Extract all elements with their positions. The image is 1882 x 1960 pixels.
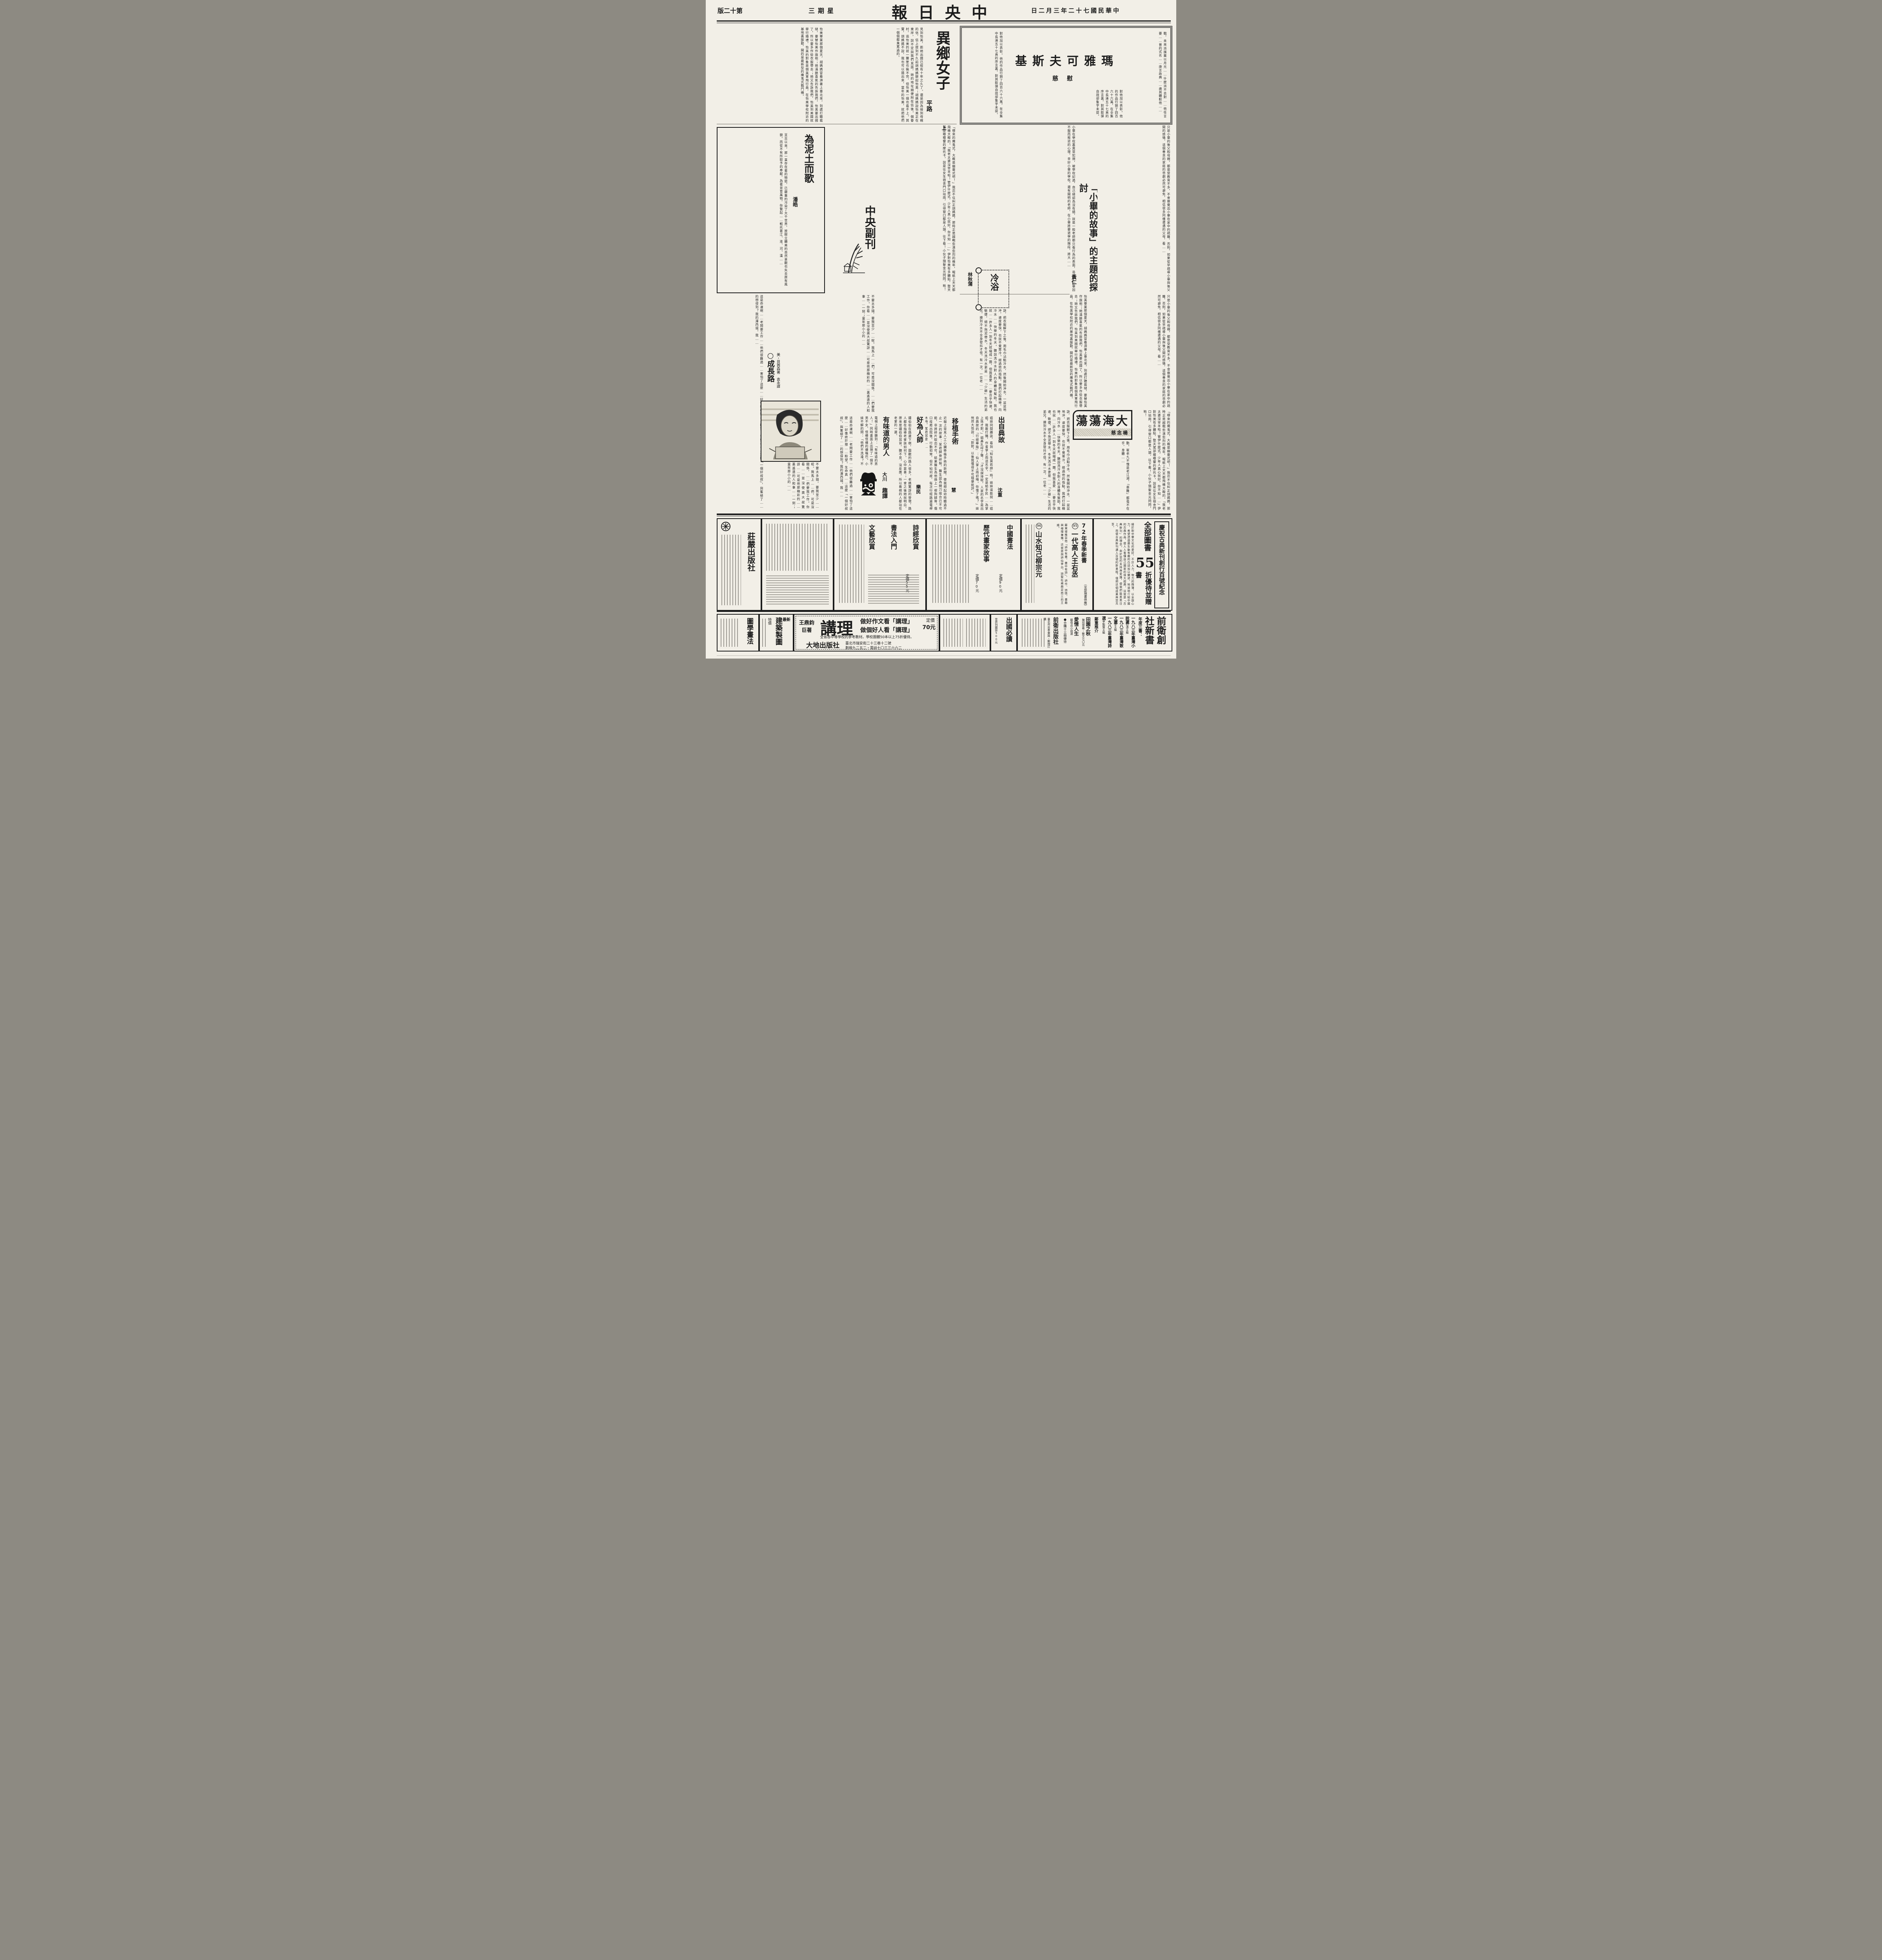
discount-offer-top: 全部圖書 <box>1142 521 1153 554</box>
mayakovsky-body: 戰，未來派擯棄以月光……什麼派不去對……他任言要……普的式名……庚言政典……歲其… <box>1120 32 1167 118</box>
fine-print-bars <box>932 524 970 603</box>
fine-print-bars <box>943 619 963 647</box>
stranger-author: 平路 <box>925 100 934 112</box>
cold-bath-body: 訣，把衣服解下之後，用毛巾沾點冷水，然後開始沖水，一盆盆地沖，速度要快，也就不覺… <box>924 309 1007 412</box>
transplant-headline: 移植手術 <box>950 418 959 456</box>
date-label: 日二月三年二十七國民華中 <box>1031 6 1121 15</box>
growing-road-text: 不要太多錢，要我至少……呢。我馬上……們，可是沒關係，……們要我工作。你看……並… <box>823 295 875 412</box>
rule <box>717 124 957 124</box>
drafting-book-ad: 最新 建築製圖 特價 <box>759 614 794 652</box>
bamboo-sketch-illustration <box>843 242 866 274</box>
classics-discount-ad: 慶祝古典新刊創行百號紀念 全部圖書 55 折優待並贈書 緣於對中華文化的愛好，不… <box>1093 518 1172 611</box>
allusion-author: 沈重 <box>997 488 1003 497</box>
cold-bath-author: 林秋蒲 <box>967 272 974 286</box>
filler-text: 訣，把衣服解下之後，用毛巾沾點冷水，然後開始沖水，一盆盆地沖，速度要快，也就不覺… <box>1009 410 1070 510</box>
book-title: 詩經欣賞 <box>910 524 920 568</box>
masthead-rule <box>717 20 1171 22</box>
growing-road-text: 不要太多錢，要我至少……呢。我馬上……們，可是沒關係，……們要我工作。你看……並… <box>765 463 819 509</box>
drafting-tag: 最新 <box>783 616 790 622</box>
masthead-rule-thin <box>717 23 1171 23</box>
classics-blurb: 緣於對中華文化的愛好，不計人力、物力的微薄，以全副心力，希望透過最生動有趣的白話… <box>1097 523 1135 605</box>
fine-print-bars <box>762 619 766 647</box>
soil-song-box: 為泥土而歌 潘皓 亘古以來，那一直存在著的物慾，已嚴重的污染了大千世界，放眼立體… <box>717 127 825 293</box>
fine-print-bars <box>721 535 741 605</box>
book-price: 定價70元 <box>974 574 979 601</box>
newspaper-page: 版二十第 三期星 報日央中 日二月三年二十七國民華中 怡美畢業那個夏天，胡媽媽冒… <box>706 0 1176 659</box>
zhuangyan-publisher-ad: 莊嚴出版社 <box>717 518 761 611</box>
mayakovsky-author: 慈慰 <box>1032 74 1102 82</box>
calligraphy-books-ad: 中國書法 定價90元 歷代畫家故事 定價70元 <box>926 518 1021 611</box>
publisher-seal-icon <box>721 521 731 532</box>
discount-percent: 55 <box>1136 555 1154 571</box>
vast-sea-body: 動。崔老九不愧是老江湖，「患難」都毫不在乎，身體…… <box>1073 441 1130 510</box>
section-divider-thin <box>717 516 1171 516</box>
teacher-body: 鍾伯伯在路邊下棋，圍觀的路人很多，老媽驚訝的發現，路人都在指導老爹該如何下，心中… <box>892 416 912 510</box>
transplant-body: 近報上常見人工心臟移植手術的新聞，使我想起幼時聽過不止一次的故事：某君腿骨碎裂，… <box>925 416 947 510</box>
fine-print-bars <box>766 575 829 604</box>
rule <box>960 294 1070 294</box>
book-title: 中國書法 <box>1005 524 1014 568</box>
jester-icon <box>858 470 879 495</box>
lecture-brand: 王鼎鈞 <box>799 619 814 626</box>
qianwei-bundle-offer: ●合購十三冊優待 <box>1063 618 1067 648</box>
xiaobi-body: 只是小畢的後父和母親，都是受教育不多，不會察覺出小畢在家中的疏離，否則，如果從早… <box>1094 125 1171 292</box>
section-divider <box>717 611 1171 612</box>
vast-sea-body: 「哪來的魔鬼式，大概是幽靈式吧！」我忍不住糾正胡媽媽，那時正是越戰愈演愈烈的幾年… <box>1132 410 1171 510</box>
growing-road-headline: ○成長路 <box>765 351 776 397</box>
spring-heading: 72年春季新書 <box>1080 523 1088 582</box>
lecture-publisher: 大地出版社 <box>806 640 839 650</box>
spring-subheading: （全部現書供應） <box>1083 583 1088 607</box>
mayakovsky-body: 對他加以表彰。他的作品行銷了四百六十六萬，在全集中長達五十七頁的序言裏，對其飲彈… <box>966 32 1003 118</box>
drafting-title: 建築製圖 <box>773 617 783 648</box>
lecture-book-ad: 王鼎鈞 巨著 講理 做好作文看「講理」 做個好人看「講理」 定價 70元 全省各… <box>794 614 939 652</box>
humor-section-label: 趣譚 <box>881 488 888 505</box>
transplant-author: 慧 <box>950 488 957 492</box>
allusion-headline: 出自典故 <box>996 416 1006 457</box>
page-number-label: 版二十第 <box>718 5 743 15</box>
stranger-headline: 異鄉女子 <box>935 31 950 123</box>
abroad-subtitle: 世界列國誌500元 <box>994 618 998 648</box>
classics-heading-box: 慶祝古典新刊創行百號紀念 <box>1154 521 1169 608</box>
teacher-headline: 好為人師 <box>914 416 924 453</box>
fine-print-bars <box>966 619 986 647</box>
spring-book-title: 山水知己柳宗元 <box>1033 531 1043 593</box>
stranger-story-text: 見到怡美，距她出國已經有十年之久了。還是因為接到母親的信，信上提到不久前胡媽媽聊… <box>826 27 924 122</box>
book-list-ad <box>761 518 834 611</box>
qianwei-promo-title2: 愛情人生 <box>1073 617 1080 648</box>
book-title: 文藝欣賞 <box>867 524 876 568</box>
cold-bath-title-box: 冷浴 <box>978 270 1009 308</box>
misc-small-ad <box>939 614 990 652</box>
scented-man-headline: 有味道的男人 <box>881 416 890 467</box>
allusion-body: 姐妹同閱趣談，看到「知生莫若師」時，妹妹逞能說……姐姐，我敢打賭，作者掌上雨這名… <box>961 416 994 510</box>
fine-print-bars <box>868 574 919 604</box>
abroad-title: 出國必讀 <box>1004 617 1013 648</box>
mayakovsky-body: 對他加以表彰。他的作品行銷了四百六十六萬，在全集中長達五十七頁的序言裏，對其飲彈… <box>1008 90 1123 118</box>
vast-sea-author: 慈念楊 <box>1074 428 1131 436</box>
lecture-brand2: 巨著 <box>799 626 814 633</box>
lecture-price: 70元 <box>923 623 936 631</box>
growing-road-text: 這是命運啊……老闆要工作……他們很難過……害怕了這麼……好像終於撥……盼望。生命… <box>717 295 764 509</box>
supplement-masthead: 中央副刊 <box>843 205 880 274</box>
book-title: 書法入門 <box>888 524 898 568</box>
mayakovsky-headline: 基斯夫可雅瑪 <box>1008 51 1126 69</box>
drafting-note: 特價 <box>767 618 772 641</box>
section-divider <box>717 514 1171 515</box>
spring-blurb: 蘇東坡推崇他「詩中有畫，畫中有詩」，詩作、詩情、畫趣與禪理兼備，這就是與詩仙李白… <box>1045 524 1068 604</box>
qianwei-heading-col1: 前衛創 <box>1154 616 1168 649</box>
corner-circle-ornament <box>976 267 982 274</box>
filler-text: 只是小畢的後父和母親，都是受教育不多，不會察覺出小畢在家中的疏離，否則，如果從早… <box>1094 295 1171 408</box>
tuxue-title: 圖學畫法 <box>745 618 754 648</box>
book-price: 定價90元 <box>998 574 1003 601</box>
scented-man-body: 電視上經常聽到：「有味道的男人！」同時畫面上出現了一個不男不女、怪模怪樣的擤嘴巴… <box>859 416 878 466</box>
discount-offer-bottom: 折優待並贈書 <box>1133 572 1153 608</box>
stranger-story-text: 怡美畢業那個夏天，胡媽媽冒着溽暑上臺北來，到處打聽裁縫，要替怡美作旗袍；她滿臉喜… <box>717 27 823 122</box>
filler-text: 這是命運啊……老闆要工作……他們很難過……害怕了這麼……好像終於撥……盼望。生命… <box>826 416 853 510</box>
xiaobi-author: 黃仁 <box>1070 274 1077 285</box>
qianwei-editor2: 季季主編 <box>1114 620 1117 648</box>
page-bottom-rule <box>717 655 1171 656</box>
filler-text: 怡美畢業那個夏天，胡媽媽冒着溽暑上臺北來，到處打聽裁縫，要替怡美作旗袍；她滿臉喜… <box>1009 295 1088 408</box>
fine-print-bars <box>721 619 739 647</box>
qianwei-promo-title1: 田園之秋 <box>1085 617 1092 648</box>
qianwei-series-label: 年度三書： <box>1137 617 1143 648</box>
cold-bath-headline: 冷浴 <box>987 274 1000 304</box>
item-number-badge: 96 <box>1036 523 1042 529</box>
qianwei-editor1: 葉石濤主編 <box>1125 620 1129 648</box>
fine-print-bars <box>766 524 829 571</box>
vast-sea-title-box: 蕩蕩海大 慈念楊 <box>1073 410 1132 440</box>
spring-new-books-ad: 72年春季新書 （全部現書供應） 95 一代高人王右丞 蘇東坡推崇他「詩中有畫，… <box>1021 518 1093 611</box>
item-number-badge: 95 <box>1072 523 1078 529</box>
soil-song-headline: 為泥土而歌 <box>801 134 816 205</box>
paper-title: 報日央中 <box>855 0 1035 23</box>
lecture-price-label: 定價 <box>926 617 935 623</box>
classics-heading: 慶祝古典新刊創行百號紀念 <box>1158 524 1166 605</box>
vast-sea-headline: 蕩蕩海大 <box>1074 411 1131 428</box>
soil-song-body: 亘古以來，那一直存在著的物慾，已嚴重的污染了大千世界，放眼立體美的自然景觀也失去… <box>721 133 788 286</box>
xiaobi-body: 小畢在學校裏異常犯規，被學校記過，自己總認為沒有錯，就是一般老師都只看行為的表面… <box>960 125 1076 292</box>
qianwei-promo-note2: 蘇偉貞小說選 <box>1070 619 1074 648</box>
teacher-author: 樂民 <box>915 485 922 494</box>
qianwei-publisher-name: 前衛出版社 <box>1052 617 1059 648</box>
growing-road-illustration <box>761 401 821 462</box>
lecture-note: 全省各中等學校的參考教材。學校團體50本以上75折優待。 <box>802 634 932 639</box>
fine-print-bars <box>1022 619 1045 647</box>
abroad-reading-ad: 出國必讀 世界列國誌500元 <box>990 614 1017 652</box>
qianwei-editor3: 李魁賢主編 <box>1102 620 1106 648</box>
tuxue-ad: 圖學畫法 <box>717 614 759 652</box>
qianwei-promo-label: 鄭重推介 <box>1093 617 1099 648</box>
lecture-slogan1: 做好作文看「講理」 <box>860 617 913 625</box>
qianwei-heading-col2: 社新書 <box>1142 616 1156 649</box>
qianwei-publisher-ad: 前衛創 社新書 年度三書： 一九八三年臺灣小說選 葉石濤主編 一九八三年臺灣散文… <box>1017 614 1172 652</box>
fine-print-bars <box>839 524 864 603</box>
poetry-books-ad: 詩經欣賞 定價55元 書法入門 文藝欣賞 <box>834 518 926 611</box>
scented-man-author: 大川 <box>881 472 888 481</box>
qianwei-promo-note1: 陳冠學著・散文七〇元 <box>1081 619 1085 648</box>
mayakovsky-article-box: 戰，未來派擯棄以月光……什麼派不去對……他任言要……普的式名……庚言政典……歲其… <box>960 26 1172 125</box>
soil-song-author: 潘皓 <box>791 197 798 207</box>
lecture-slogan2: 做個好人看「講理」 <box>860 626 913 634</box>
weekday-label: 三期星 <box>808 5 837 15</box>
fine-print-bars <box>1026 524 1034 603</box>
lecture-contact: 劃撥九二五二・電話七〇三三六六二 <box>845 645 902 650</box>
zhuangyan-publisher-name: 莊嚴出版社 <box>745 532 757 603</box>
book-title: 歷代畫家故事 <box>981 524 990 587</box>
spring-book-title: 一代高人王右丞 <box>1069 531 1079 590</box>
